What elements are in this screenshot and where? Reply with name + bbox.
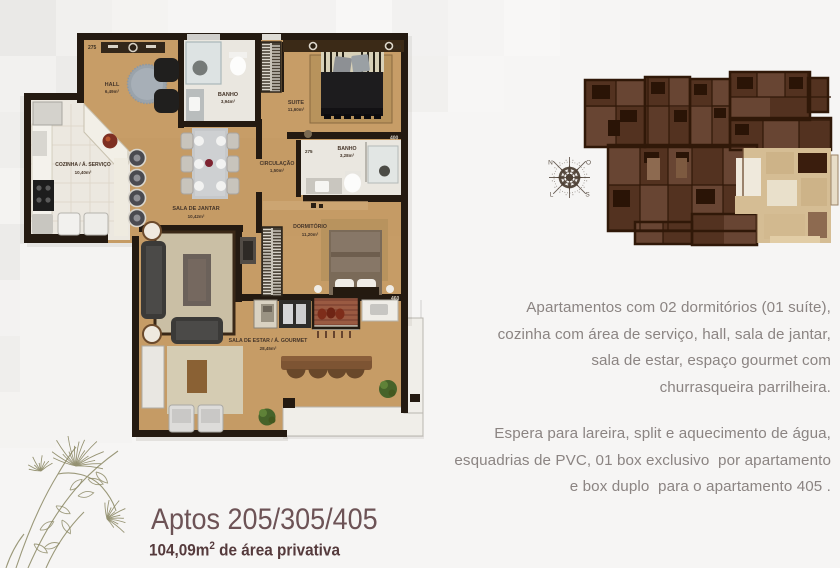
svg-text:6,49m²: 6,49m² xyxy=(105,89,120,94)
svg-text:S: S xyxy=(585,192,590,199)
svg-text:DORMITÓRIO: DORMITÓRIO xyxy=(293,222,327,230)
svg-text:275: 275 xyxy=(88,45,97,51)
svg-text:3,94m²: 3,94m² xyxy=(221,99,236,104)
svg-text:400: 400 xyxy=(390,136,399,142)
svg-text:10,42m²: 10,42m² xyxy=(188,214,205,219)
svg-text:28,45m²: 28,45m² xyxy=(260,346,277,351)
svg-text:N: N xyxy=(548,160,553,167)
svg-text:COZINHA / Á. SERVIÇO: COZINHA / Á. SERVIÇO xyxy=(55,161,111,168)
svg-text:10,40m²: 10,40m² xyxy=(75,170,92,175)
svg-text:460: 460 xyxy=(391,296,400,302)
svg-text:O: O xyxy=(586,160,591,167)
svg-text:275: 275 xyxy=(305,149,313,154)
svg-text:HALL: HALL xyxy=(105,82,120,88)
svg-text:SALA DE ESTAR / Á. GOURMET: SALA DE ESTAR / Á. GOURMET xyxy=(229,337,309,344)
svg-text:BANHO: BANHO xyxy=(337,146,356,152)
svg-text:1,50m²: 1,50m² xyxy=(270,168,285,173)
svg-text:11,20m²: 11,20m² xyxy=(302,232,319,237)
svg-text:290: 290 xyxy=(393,45,402,51)
svg-text:L: L xyxy=(550,192,554,199)
svg-text:SUITE: SUITE xyxy=(288,100,305,106)
svg-text:CIRCULAÇÃO: CIRCULAÇÃO xyxy=(260,160,295,167)
svg-text:3,28m²: 3,28m² xyxy=(340,153,355,158)
svg-text:SALA DE JANTAR: SALA DE JANTAR xyxy=(172,206,219,212)
svg-text:11,60m²: 11,60m² xyxy=(288,107,305,112)
svg-text:BANHO: BANHO xyxy=(218,92,239,98)
